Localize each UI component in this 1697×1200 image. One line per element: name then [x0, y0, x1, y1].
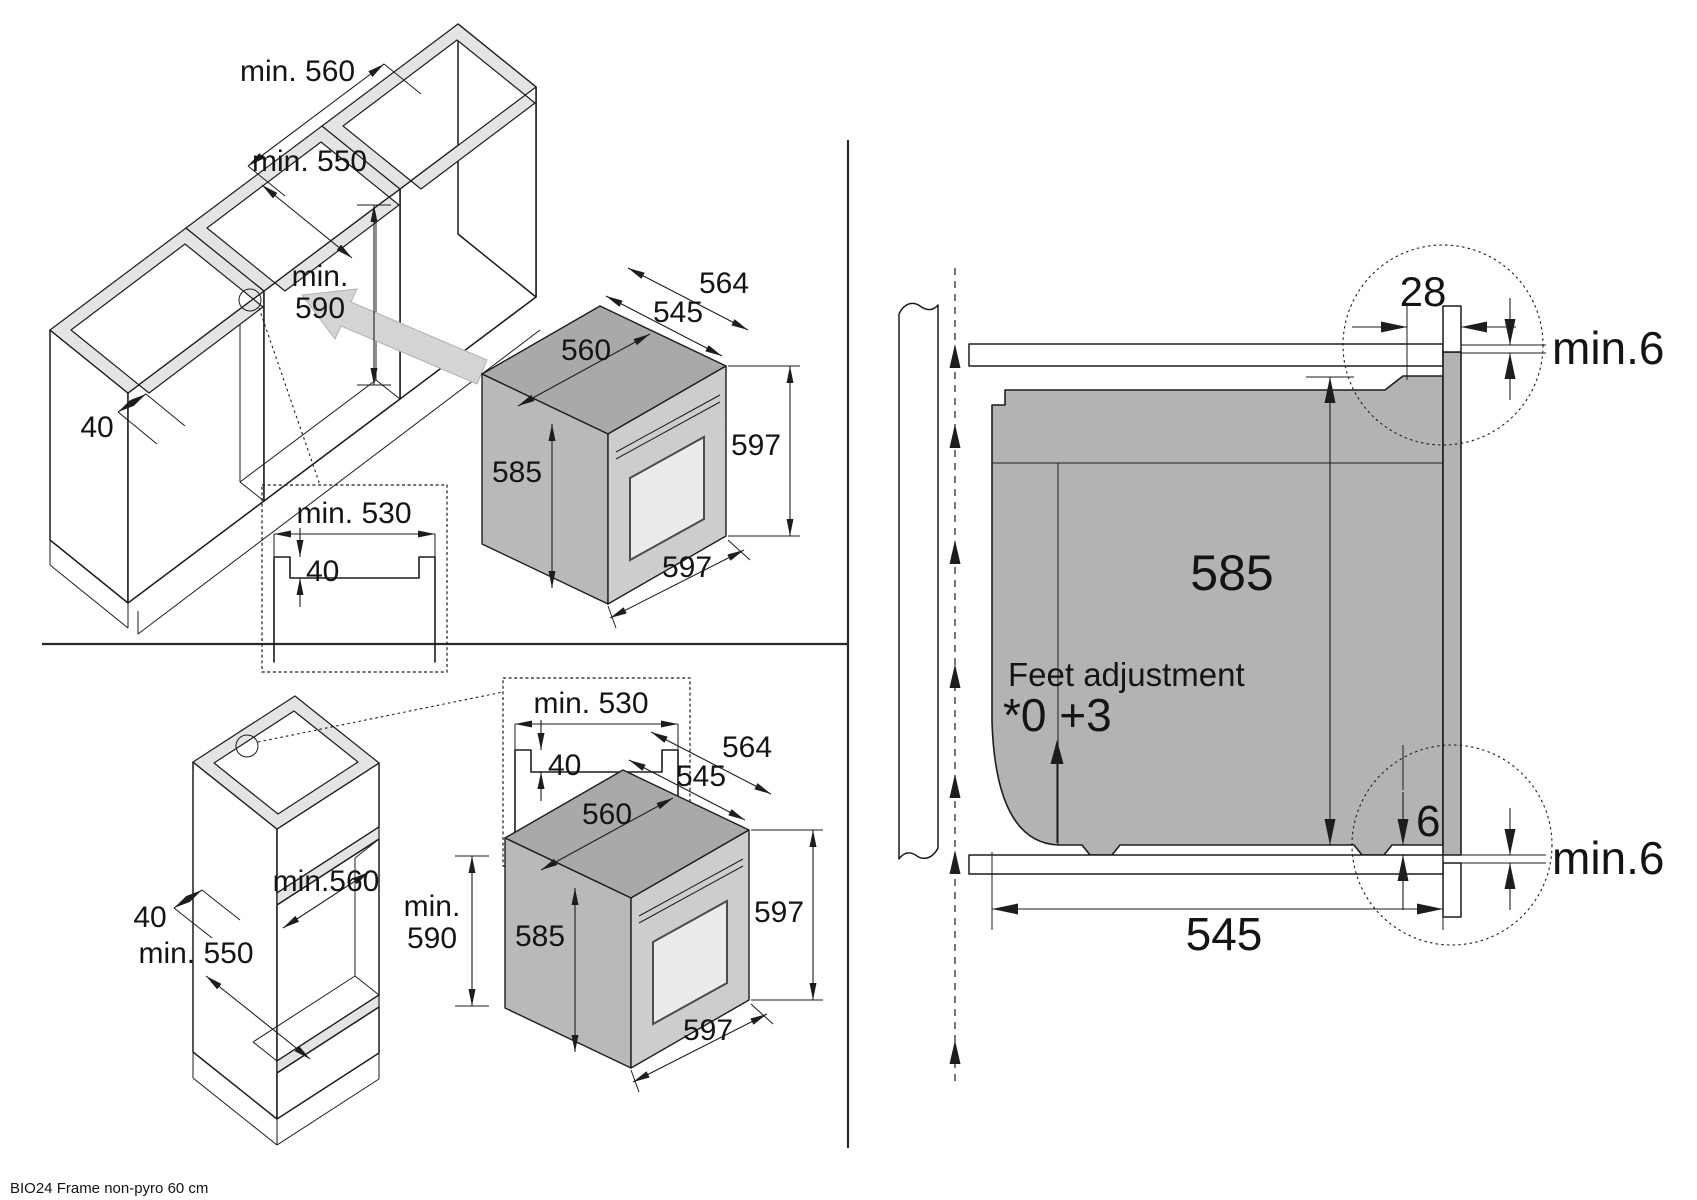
tall-cabinet-drawing	[193, 696, 379, 1145]
base-width-label: min. 560	[240, 55, 355, 88]
tall-niche-height-label-1: min.	[404, 890, 461, 923]
trim-width-label: 28	[1400, 268, 1447, 315]
base-cabinet-row-drawing	[50, 24, 540, 634]
base-cabinet-panel: min. 560 min. 550 min. 590 40 min.	[50, 24, 800, 672]
base-inset-depth-dimension: 40	[300, 528, 339, 607]
tall-depth-label: min. 550	[138, 937, 253, 970]
bottom-gap-dimension: min.6	[1461, 808, 1664, 910]
tall-niche-height-dimension: min. 590	[404, 856, 489, 1006]
top-gap-dimension: min.6	[1461, 298, 1664, 400]
base-front-rail-label: 40	[80, 411, 113, 444]
tall-niche-height-label-2: 590	[407, 922, 457, 955]
feet-adjustment-range: *0 +3	[1003, 689, 1112, 741]
diagram-canvas: min. 560 min. 550 min. 590 40 min.	[0, 0, 1697, 1200]
rear-wall	[899, 303, 938, 859]
bottom-gap-label: min.6	[1552, 832, 1664, 884]
base-oven-height-side-label: 585	[492, 456, 542, 489]
feet-adjustment-label: Feet adjustment	[1008, 656, 1245, 693]
bottom-clearance-label: 6	[1416, 797, 1440, 846]
countertop	[969, 344, 1443, 366]
tall-niche-width-label: min.560	[273, 865, 380, 898]
tall-inset-depth-dimension: 40	[541, 720, 581, 801]
oven-front-frame	[1443, 352, 1461, 855]
wall-reference-line	[950, 268, 961, 1085]
tall-front-rail-label: 40	[133, 901, 166, 934]
base-depth-label: min. 550	[252, 145, 367, 178]
base-inset-width-label: min. 530	[296, 497, 411, 530]
top-gap-label: min.6	[1552, 322, 1664, 374]
tall-cabinet-panel: min. 530 40 min. 590 min.560 40	[133, 678, 823, 1145]
base-inset-depth-label: 40	[306, 555, 339, 588]
base-oven-height-front-label: 597	[731, 429, 781, 462]
base-niche-height-label-1: min.	[292, 260, 349, 293]
bottom-shelf	[969, 855, 1443, 874]
base-oven-width-top-label: 560	[561, 334, 611, 367]
tall-oven-width-front-label: 597	[683, 1014, 733, 1047]
oven-section-body	[992, 376, 1443, 855]
base-oven-depth-total-label: 564	[699, 267, 749, 300]
base-oven-width-front-label: 597	[662, 551, 712, 584]
tall-oven-depth-body-label: 545	[676, 760, 726, 793]
base-niche-height-label-2: 590	[295, 292, 345, 325]
front-frame-bottom-trim	[1443, 863, 1461, 917]
tall-inset-depth-label: 40	[548, 749, 581, 782]
tall-inset-width-label: min. 530	[533, 687, 648, 720]
installation-diagram-page: min. 560 min. 550 min. 590 40 min.	[0, 0, 1697, 1200]
tall-detail-marker	[236, 692, 503, 757]
footer-model-note: BIO24 Frame non-pyro 60 cm	[10, 1180, 208, 1197]
side-section-panel: 28 min.6 585 Feet adjustment *0 +3	[899, 245, 1664, 1085]
body-depth-label: 545	[1186, 908, 1263, 960]
tall-oven-height-side-label: 585	[515, 920, 565, 953]
base-oven-depth-body-label: 545	[653, 296, 703, 329]
tall-oven-width-top-label: 560	[582, 798, 632, 831]
tall-oven-height-front-label: 597	[754, 896, 804, 929]
tall-oven-depth-total-label: 564	[722, 731, 772, 764]
body-height-label: 585	[1190, 545, 1273, 601]
